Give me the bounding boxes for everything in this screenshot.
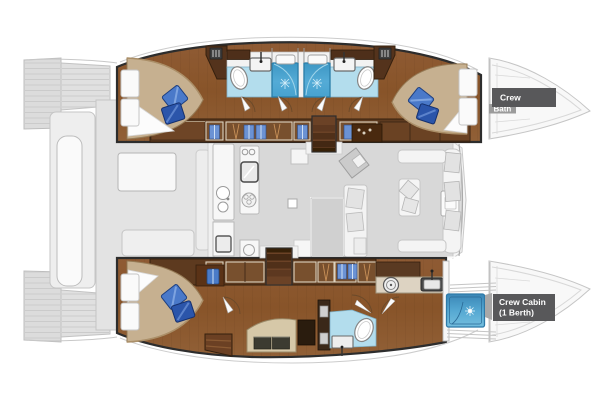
svg-text:(1 Berth): (1 Berth) [499,308,534,318]
svg-text:Crew Cabin: Crew Cabin [499,297,546,307]
svg-text:Crew: Crew [500,93,521,103]
